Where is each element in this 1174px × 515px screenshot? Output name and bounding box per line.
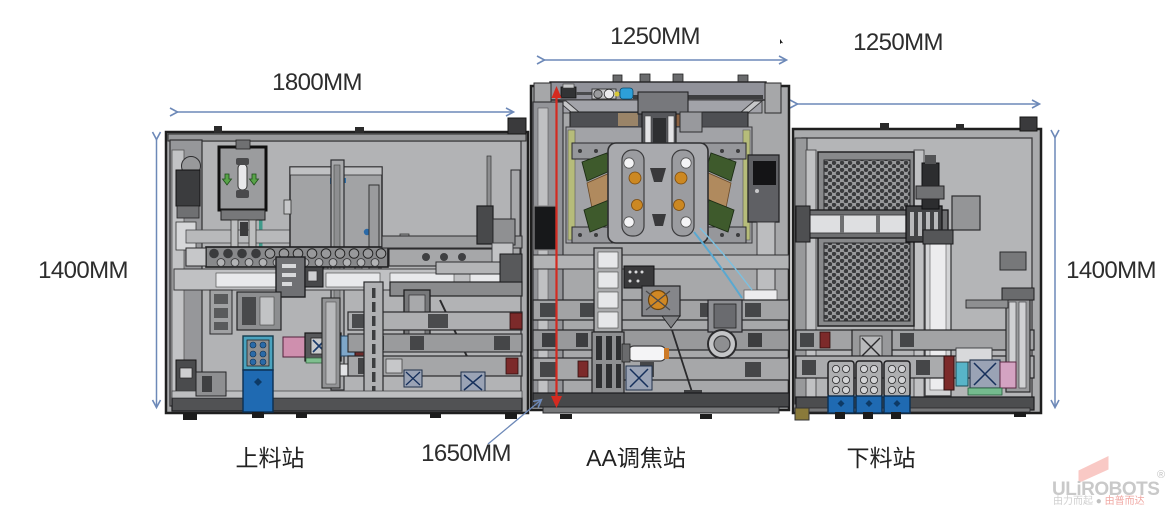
svg-text:AA调焦站: AA调焦站 [586,445,686,471]
svg-text:1800MM: 1800MM [272,69,362,96]
svg-text:1650MM: 1650MM [421,440,511,467]
svg-text:1250MM: 1250MM [853,29,943,56]
svg-text:1400MM: 1400MM [1066,257,1156,284]
svg-text:上料站: 上料站 [236,445,305,471]
svg-text:下料站: 下料站 [847,445,916,471]
svg-text:®: ® [1157,469,1165,481]
svg-text:1400MM: 1400MM [38,257,128,284]
svg-text:1250MM: 1250MM [610,23,700,50]
svg-text:由力而起 ● 由普而达: 由力而起 ● 由普而达 [1053,494,1145,507]
